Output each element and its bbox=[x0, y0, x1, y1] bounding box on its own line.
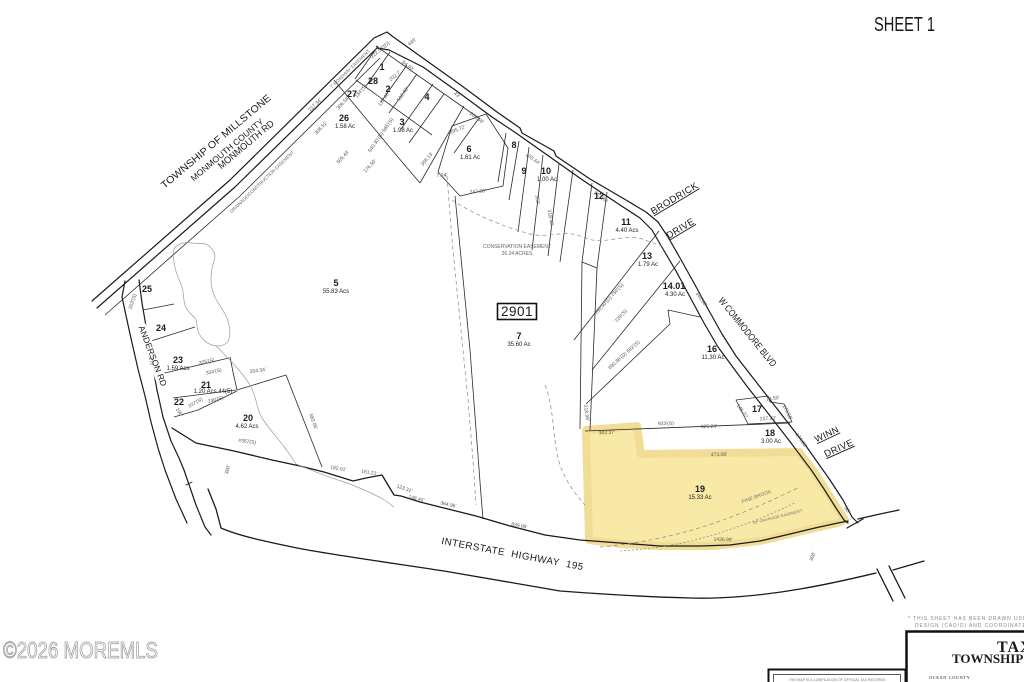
svg-text:7.14': 7.14' bbox=[437, 173, 448, 179]
svg-text:473.08': 473.08' bbox=[711, 452, 727, 459]
svg-text:4.30 Ac: 4.30 Ac bbox=[665, 292, 685, 298]
svg-text:18: 18 bbox=[765, 428, 775, 438]
svg-text:6: 6 bbox=[466, 144, 471, 154]
svg-text:1.00 Ac: 1.00 Ac bbox=[537, 177, 557, 183]
svg-text:25: 25 bbox=[142, 284, 152, 294]
svg-text:17: 17 bbox=[752, 404, 762, 414]
svg-text:THIS MAP IS A COMPILATION OF O: THIS MAP IS A COMPILATION OF OFFICIAL TA… bbox=[789, 678, 887, 682]
svg-text:2901: 2901 bbox=[501, 304, 533, 319]
svg-text:14.01: 14.01 bbox=[663, 281, 686, 291]
svg-text:16: 16 bbox=[707, 344, 717, 354]
svg-text:1.79 Ac: 1.79 Ac bbox=[638, 262, 658, 268]
svg-text:1.98 Ac: 1.98 Ac bbox=[393, 128, 413, 134]
svg-text:1.61 Ac: 1.61 Ac bbox=[460, 155, 480, 161]
svg-text:1: 1 bbox=[379, 62, 384, 72]
svg-text:7: 7 bbox=[516, 331, 521, 341]
svg-text:OCEAN COUNTY: OCEAN COUNTY bbox=[929, 675, 971, 680]
svg-text:CONSERVATION EASEMENT: CONSERVATION EASEMENT bbox=[483, 244, 551, 250]
svg-text:3: 3 bbox=[399, 117, 404, 127]
svg-text:23: 23 bbox=[173, 355, 183, 365]
svg-text:26: 26 bbox=[339, 113, 349, 123]
svg-text:55.83 Acs: 55.83 Acs bbox=[323, 289, 349, 295]
svg-text:237.23': 237.23' bbox=[760, 416, 777, 423]
svg-text:©2026 MOREMLS: ©2026 MOREMLS bbox=[3, 637, 158, 663]
svg-text:26.24 ACRES: 26.24 ACRES bbox=[502, 251, 534, 257]
svg-text:825.24': 825.24' bbox=[701, 424, 717, 431]
svg-text:5: 5 bbox=[333, 278, 338, 288]
svg-text:4: 4 bbox=[424, 92, 429, 102]
svg-text:4.62 Acs: 4.62 Acs bbox=[235, 424, 258, 430]
svg-text:28: 28 bbox=[368, 76, 378, 86]
svg-text:TOWNSHIP O: TOWNSHIP O bbox=[952, 651, 1024, 666]
svg-text:11: 11 bbox=[621, 217, 631, 227]
svg-text:22: 22 bbox=[174, 397, 184, 407]
svg-text:9: 9 bbox=[521, 166, 526, 176]
svg-text:13: 13 bbox=[642, 251, 652, 261]
svg-text:1436.99': 1436.99' bbox=[713, 537, 732, 544]
svg-text:15.33 Ac: 15.33 Ac bbox=[688, 495, 711, 501]
svg-text:8: 8 bbox=[511, 140, 516, 150]
svg-text:* THIS SHEET HAS BEEN DRAWN US: * THIS SHEET HAS BEEN DRAWN USING AUTOCA… bbox=[908, 616, 1024, 622]
svg-text:20: 20 bbox=[243, 413, 253, 423]
svg-text:SHEET 1: SHEET 1 bbox=[874, 14, 935, 36]
svg-text:10: 10 bbox=[541, 166, 551, 176]
svg-text:DESIGN (CAD/D) AND COORDINATE: DESIGN (CAD/D) AND COORDINATE GEOMETRY bbox=[915, 623, 1024, 629]
svg-text:302.37': 302.37' bbox=[599, 430, 616, 437]
svg-text:1.58 Ac: 1.58 Ac bbox=[335, 124, 355, 130]
svg-text:11.30 Ac: 11.30 Ac bbox=[702, 355, 725, 361]
svg-text:1.59 Acs: 1.59 Acs bbox=[166, 366, 189, 372]
svg-text:3.00 Ac: 3.00 Ac bbox=[761, 439, 781, 445]
svg-text:24: 24 bbox=[156, 323, 166, 333]
svg-text:35.60 Ac: 35.60 Ac bbox=[507, 342, 530, 348]
svg-text:1.20 Acs 44(5): 1.20 Acs 44(5) bbox=[194, 389, 233, 395]
svg-text:933'(S): 933'(S) bbox=[658, 421, 674, 428]
svg-text:19: 19 bbox=[695, 484, 705, 494]
svg-text:4.40 Acs: 4.40 Acs bbox=[615, 228, 638, 234]
